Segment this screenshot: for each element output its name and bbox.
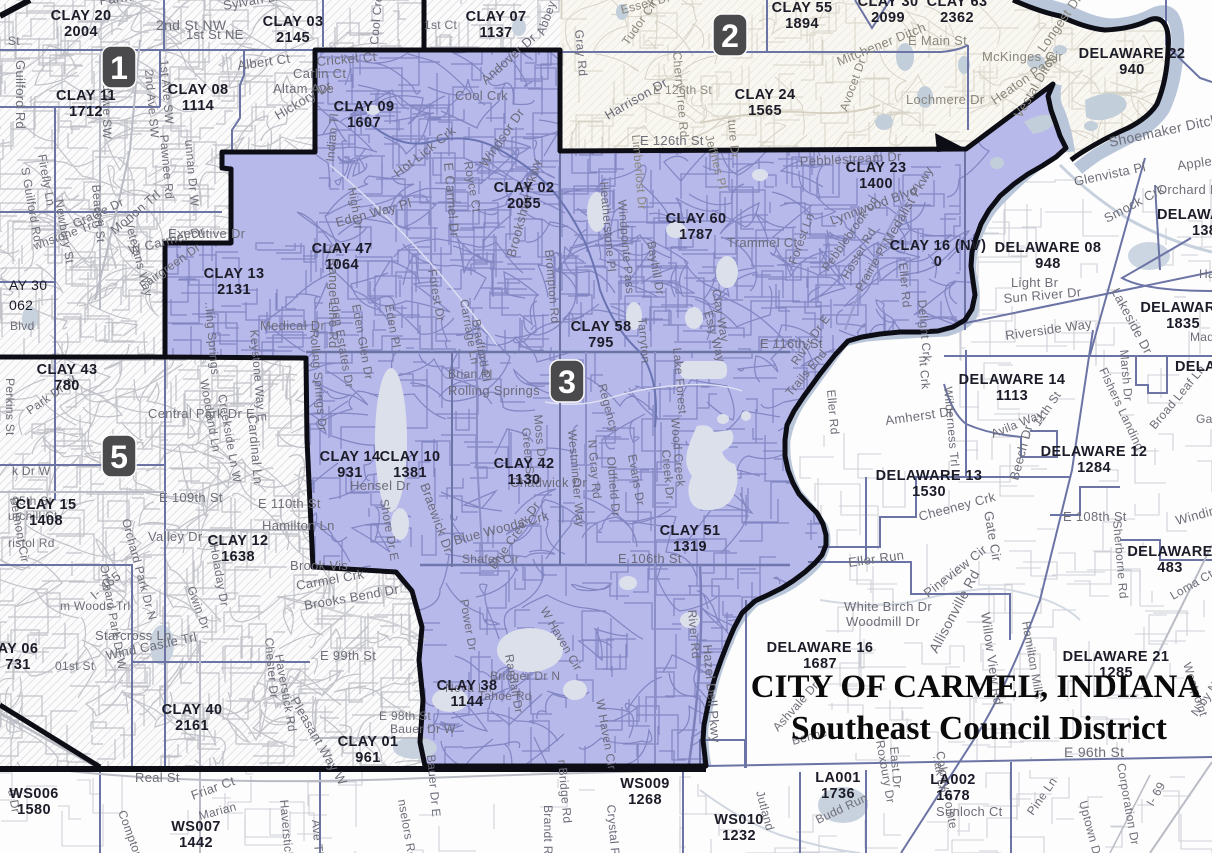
svg-text:DELAWARE 14: DELAWARE 14	[959, 372, 1066, 388]
svg-text:1064: 1064	[325, 257, 359, 273]
svg-text:2004: 2004	[64, 24, 98, 40]
svg-text:1580: 1580	[17, 802, 51, 818]
svg-text:CLAY 24: CLAY 24	[735, 87, 796, 103]
svg-text:1268: 1268	[628, 792, 662, 808]
svg-text:1408: 1408	[29, 513, 63, 529]
svg-text:1565: 1565	[748, 103, 782, 119]
svg-text:DELAWARE: DELAWARE	[1140, 300, 1212, 316]
svg-text:Guilford Rd: Guilford Rd	[13, 60, 28, 129]
svg-text:DELAWARE: DELAWARE	[1127, 544, 1212, 560]
svg-text:Bridger Dr N: Bridger Dr N	[490, 669, 560, 683]
svg-text:1787: 1787	[679, 227, 713, 243]
svg-text:WS009: WS009	[620, 776, 670, 792]
svg-text:Southeast Council District: Southeast Council District	[791, 710, 1168, 747]
svg-text:White Birch Dr: White Birch Dr	[844, 599, 932, 614]
svg-text:CLAY 16 (NV): CLAY 16 (NV)	[890, 238, 987, 254]
svg-text:Madden: Madden	[1190, 330, 1212, 344]
svg-text:CLAY 42: CLAY 42	[494, 456, 555, 472]
svg-text:961: 961	[355, 750, 380, 766]
svg-text:Shafer Cir: Shafer Cir	[462, 552, 519, 566]
svg-text:CLAY 30: CLAY 30	[858, 0, 919, 10]
svg-text:138: 138	[1192, 223, 1212, 239]
svg-text:LA001: LA001	[815, 770, 861, 786]
svg-text:E 126th St: E 126th St	[640, 133, 704, 148]
svg-text:3: 3	[558, 364, 576, 400]
svg-text:931: 931	[337, 465, 362, 481]
svg-text:DELAWARE 21: DELAWARE 21	[1063, 649, 1170, 665]
svg-text:CLAY 08: CLAY 08	[168, 82, 229, 98]
svg-text:940: 940	[1119, 62, 1144, 78]
svg-text:Cool Crk: Cool Crk	[455, 88, 508, 103]
svg-text:WS010: WS010	[714, 812, 764, 828]
svg-text:2131: 2131	[217, 282, 251, 298]
svg-text:1638: 1638	[221, 549, 255, 565]
svg-text:k Dr W: k Dr W	[12, 464, 51, 478]
svg-text:Bauer Dr W: Bauer Dr W	[390, 722, 456, 736]
svg-text:2161: 2161	[175, 718, 209, 734]
svg-text:CLAY 11: CLAY 11	[56, 88, 116, 104]
svg-text:CLAY 55: CLAY 55	[772, 0, 833, 16]
svg-text:Perkins St: Perkins St	[3, 378, 17, 436]
svg-text:CLAY 63: CLAY 63	[927, 0, 988, 10]
svg-text:1442: 1442	[179, 835, 213, 851]
svg-text:AY 30: AY 30	[9, 277, 47, 293]
svg-text:2099: 2099	[871, 10, 905, 26]
svg-text:1319: 1319	[673, 539, 707, 555]
svg-text:CLAY 03: CLAY 03	[263, 14, 324, 30]
svg-text:CLAY 20: CLAY 20	[51, 8, 112, 24]
svg-text:CLAY 09: CLAY 09	[334, 99, 395, 115]
svg-text:1835: 1835	[1166, 316, 1200, 332]
svg-text:062: 062	[9, 297, 33, 313]
svg-text:DELAWARE 12: DELAWARE 12	[1041, 444, 1148, 460]
svg-text:CLAY 02: CLAY 02	[494, 180, 555, 196]
svg-text:E 126th St: E 126th St	[653, 83, 712, 97]
svg-text:1st Ct: 1st Ct	[424, 18, 458, 32]
svg-text:E 110th St: E 110th St	[258, 496, 321, 511]
svg-text:DELAWARE 16: DELAWARE 16	[767, 640, 874, 656]
svg-text:1678: 1678	[936, 788, 970, 804]
svg-text:1137: 1137	[479, 25, 512, 41]
svg-text:DELA: DELA	[1175, 359, 1212, 375]
svg-text:CLAY 07: CLAY 07	[466, 9, 527, 25]
svg-text:1607: 1607	[347, 115, 381, 131]
svg-text:Lochmere Dr: Lochmere Dr	[906, 92, 985, 107]
svg-text:Gar: Gar	[1196, 412, 1212, 426]
svg-text:ristol Rd: ristol Rd	[8, 536, 55, 550]
svg-text:Trammel Ct: Trammel Ct	[727, 235, 797, 250]
svg-text:Brandt Rd: Brandt Rd	[541, 805, 555, 853]
svg-text:2362: 2362	[940, 10, 974, 26]
svg-text:1736: 1736	[821, 786, 855, 802]
svg-text:DELAWAR: DELAWAR	[1157, 207, 1212, 223]
svg-text:5: 5	[110, 439, 128, 475]
svg-text:DELAWARE 13: DELAWARE 13	[876, 468, 983, 484]
svg-text:0: 0	[934, 254, 942, 270]
svg-text:Central Park Dr E: Central Park Dr E	[148, 406, 255, 421]
svg-text:Blvd: Blvd	[10, 319, 35, 333]
svg-text:nt Crk: nt Crk	[916, 355, 933, 391]
svg-text:E 109th St: E 109th St	[159, 490, 223, 505]
svg-text:E 98th St: E 98th St	[379, 709, 431, 723]
svg-text:1232: 1232	[722, 828, 756, 844]
svg-text:Brian Pl: Brian Pl	[448, 367, 492, 381]
svg-text:CLAY 58: CLAY 58	[571, 319, 632, 335]
svg-text:CLAY 23: CLAY 23	[846, 160, 907, 176]
svg-text:CLAY 12: CLAY 12	[208, 533, 269, 549]
svg-text:1894: 1894	[785, 16, 819, 32]
svg-text:1114: 1114	[182, 98, 214, 114]
svg-text:Woodmill Dr: Woodmill Dr	[846, 614, 920, 629]
svg-text:2145: 2145	[276, 30, 310, 46]
svg-text:CLAY 01: CLAY 01	[338, 734, 399, 750]
svg-text:CLAY 13: CLAY 13	[204, 266, 265, 282]
svg-text:Real St: Real St	[135, 770, 180, 785]
svg-text:1712: 1712	[69, 104, 103, 120]
svg-text:1381: 1381	[393, 465, 427, 481]
svg-text:1130: 1130	[507, 472, 540, 488]
svg-text:1284: 1284	[1077, 460, 1111, 476]
svg-text:1st St NE: 1st St NE	[186, 27, 244, 42]
svg-text:Executive Dr: Executive Dr	[168, 226, 246, 241]
svg-text:1144: 1144	[450, 694, 483, 710]
svg-text:CLAY 51: CLAY 51	[660, 523, 721, 539]
svg-text:CLAY 10: CLAY 10	[380, 449, 441, 465]
svg-text:WS007: WS007	[171, 819, 221, 835]
svg-text:WS006: WS006	[9, 786, 59, 802]
svg-text:CLAY 40: CLAY 40	[162, 702, 223, 718]
svg-text:2: 2	[721, 18, 739, 54]
svg-text:2055: 2055	[507, 196, 541, 212]
svg-text:DELAWARE 08: DELAWARE 08	[995, 240, 1102, 256]
svg-text:1400: 1400	[859, 176, 893, 192]
svg-text:CITY OF CARMEL, INDIANA: CITY OF CARMEL, INDIANA	[751, 669, 1202, 705]
svg-text:1: 1	[110, 50, 128, 86]
svg-text:Hamilton Ln: Hamilton Ln	[262, 518, 335, 533]
svg-text:DELAWARE 22: DELAWARE 22	[1079, 46, 1186, 62]
svg-text:St: St	[8, 34, 20, 48]
svg-text:E Main St: E Main St	[908, 33, 967, 48]
svg-text:483: 483	[1157, 560, 1182, 576]
svg-text:1530: 1530	[912, 484, 946, 500]
svg-text:780: 780	[54, 378, 79, 394]
svg-text:795: 795	[588, 335, 613, 351]
svg-text:Sunloch Ct: Sunloch Ct	[936, 804, 1003, 819]
svg-text:E 99th St: E 99th St	[320, 648, 376, 663]
svg-text:CLAY 15: CLAY 15	[16, 497, 77, 513]
svg-text:CLAY 38: CLAY 38	[437, 678, 498, 694]
svg-text:1113: 1113	[996, 388, 1028, 404]
svg-text:CLAY 43: CLAY 43	[37, 362, 98, 378]
svg-text:CLAY 47: CLAY 47	[312, 241, 373, 257]
svg-text:CLAY 60: CLAY 60	[666, 211, 727, 227]
svg-text:CLAY 14: CLAY 14	[320, 449, 381, 465]
svg-text:731: 731	[5, 657, 30, 673]
svg-text:01st St: 01st St	[55, 659, 95, 673]
svg-text:Har: Har	[1199, 267, 1212, 281]
svg-text:Rolling Springs: Rolling Springs	[448, 383, 540, 398]
svg-text:LA002: LA002	[930, 772, 976, 788]
svg-text:948: 948	[1035, 256, 1060, 272]
svg-text:Valley Dr: Valley Dr	[148, 529, 203, 544]
svg-text:AY 06: AY 06	[0, 641, 38, 657]
